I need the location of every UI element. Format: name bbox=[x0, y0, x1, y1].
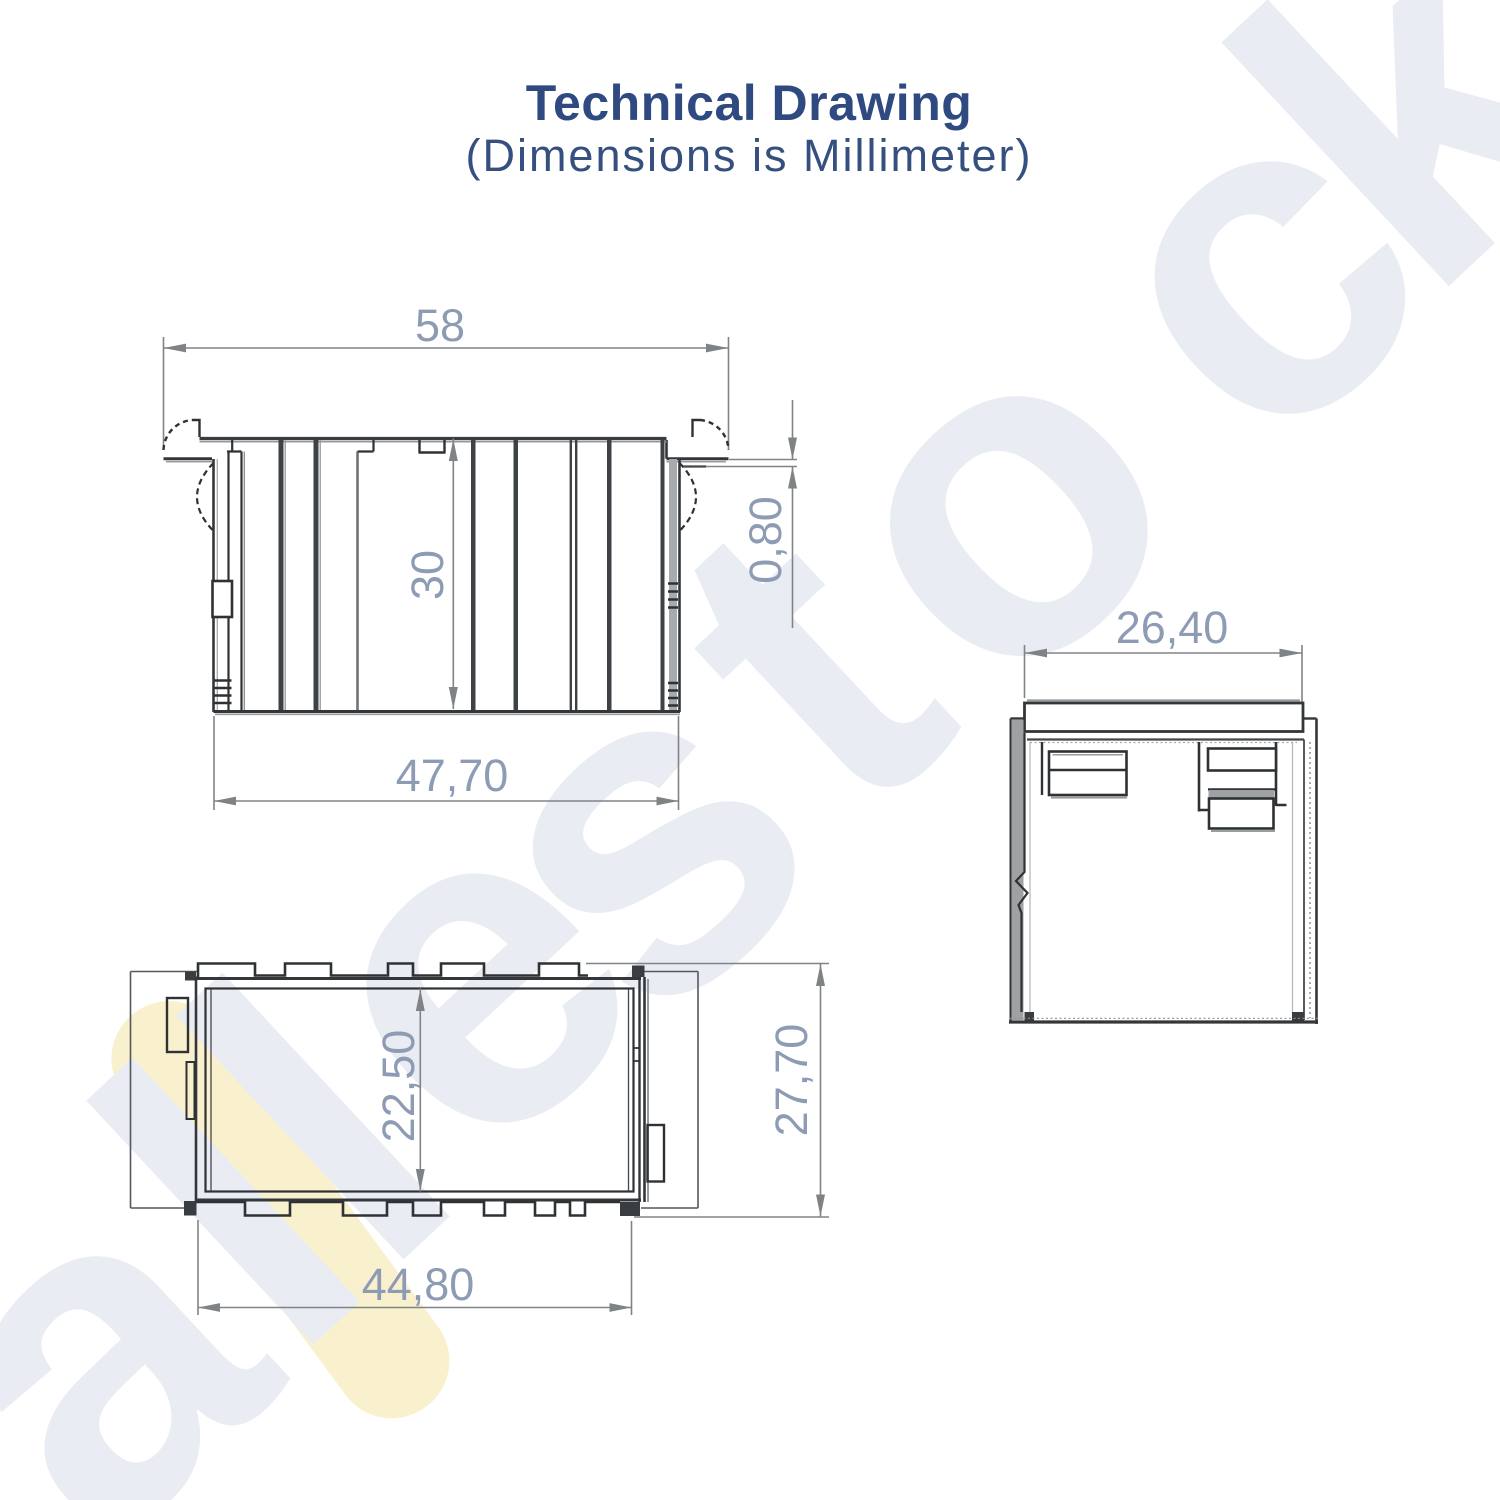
svg-text:30: 30 bbox=[402, 550, 453, 600]
svg-text:47,70: 47,70 bbox=[396, 750, 509, 801]
svg-text:22,50: 22,50 bbox=[373, 1030, 424, 1143]
svg-text:58: 58 bbox=[415, 300, 465, 351]
svg-text:(Dimensions is Millimeter): (Dimensions is Millimeter) bbox=[465, 130, 1032, 181]
svg-text:0,80: 0,80 bbox=[740, 496, 791, 584]
svg-text:27,70: 27,70 bbox=[766, 1024, 817, 1137]
svg-text:44,80: 44,80 bbox=[362, 1259, 475, 1310]
svg-text:Technical Drawing: Technical Drawing bbox=[526, 75, 973, 131]
svg-text:26,40: 26,40 bbox=[1116, 602, 1229, 653]
